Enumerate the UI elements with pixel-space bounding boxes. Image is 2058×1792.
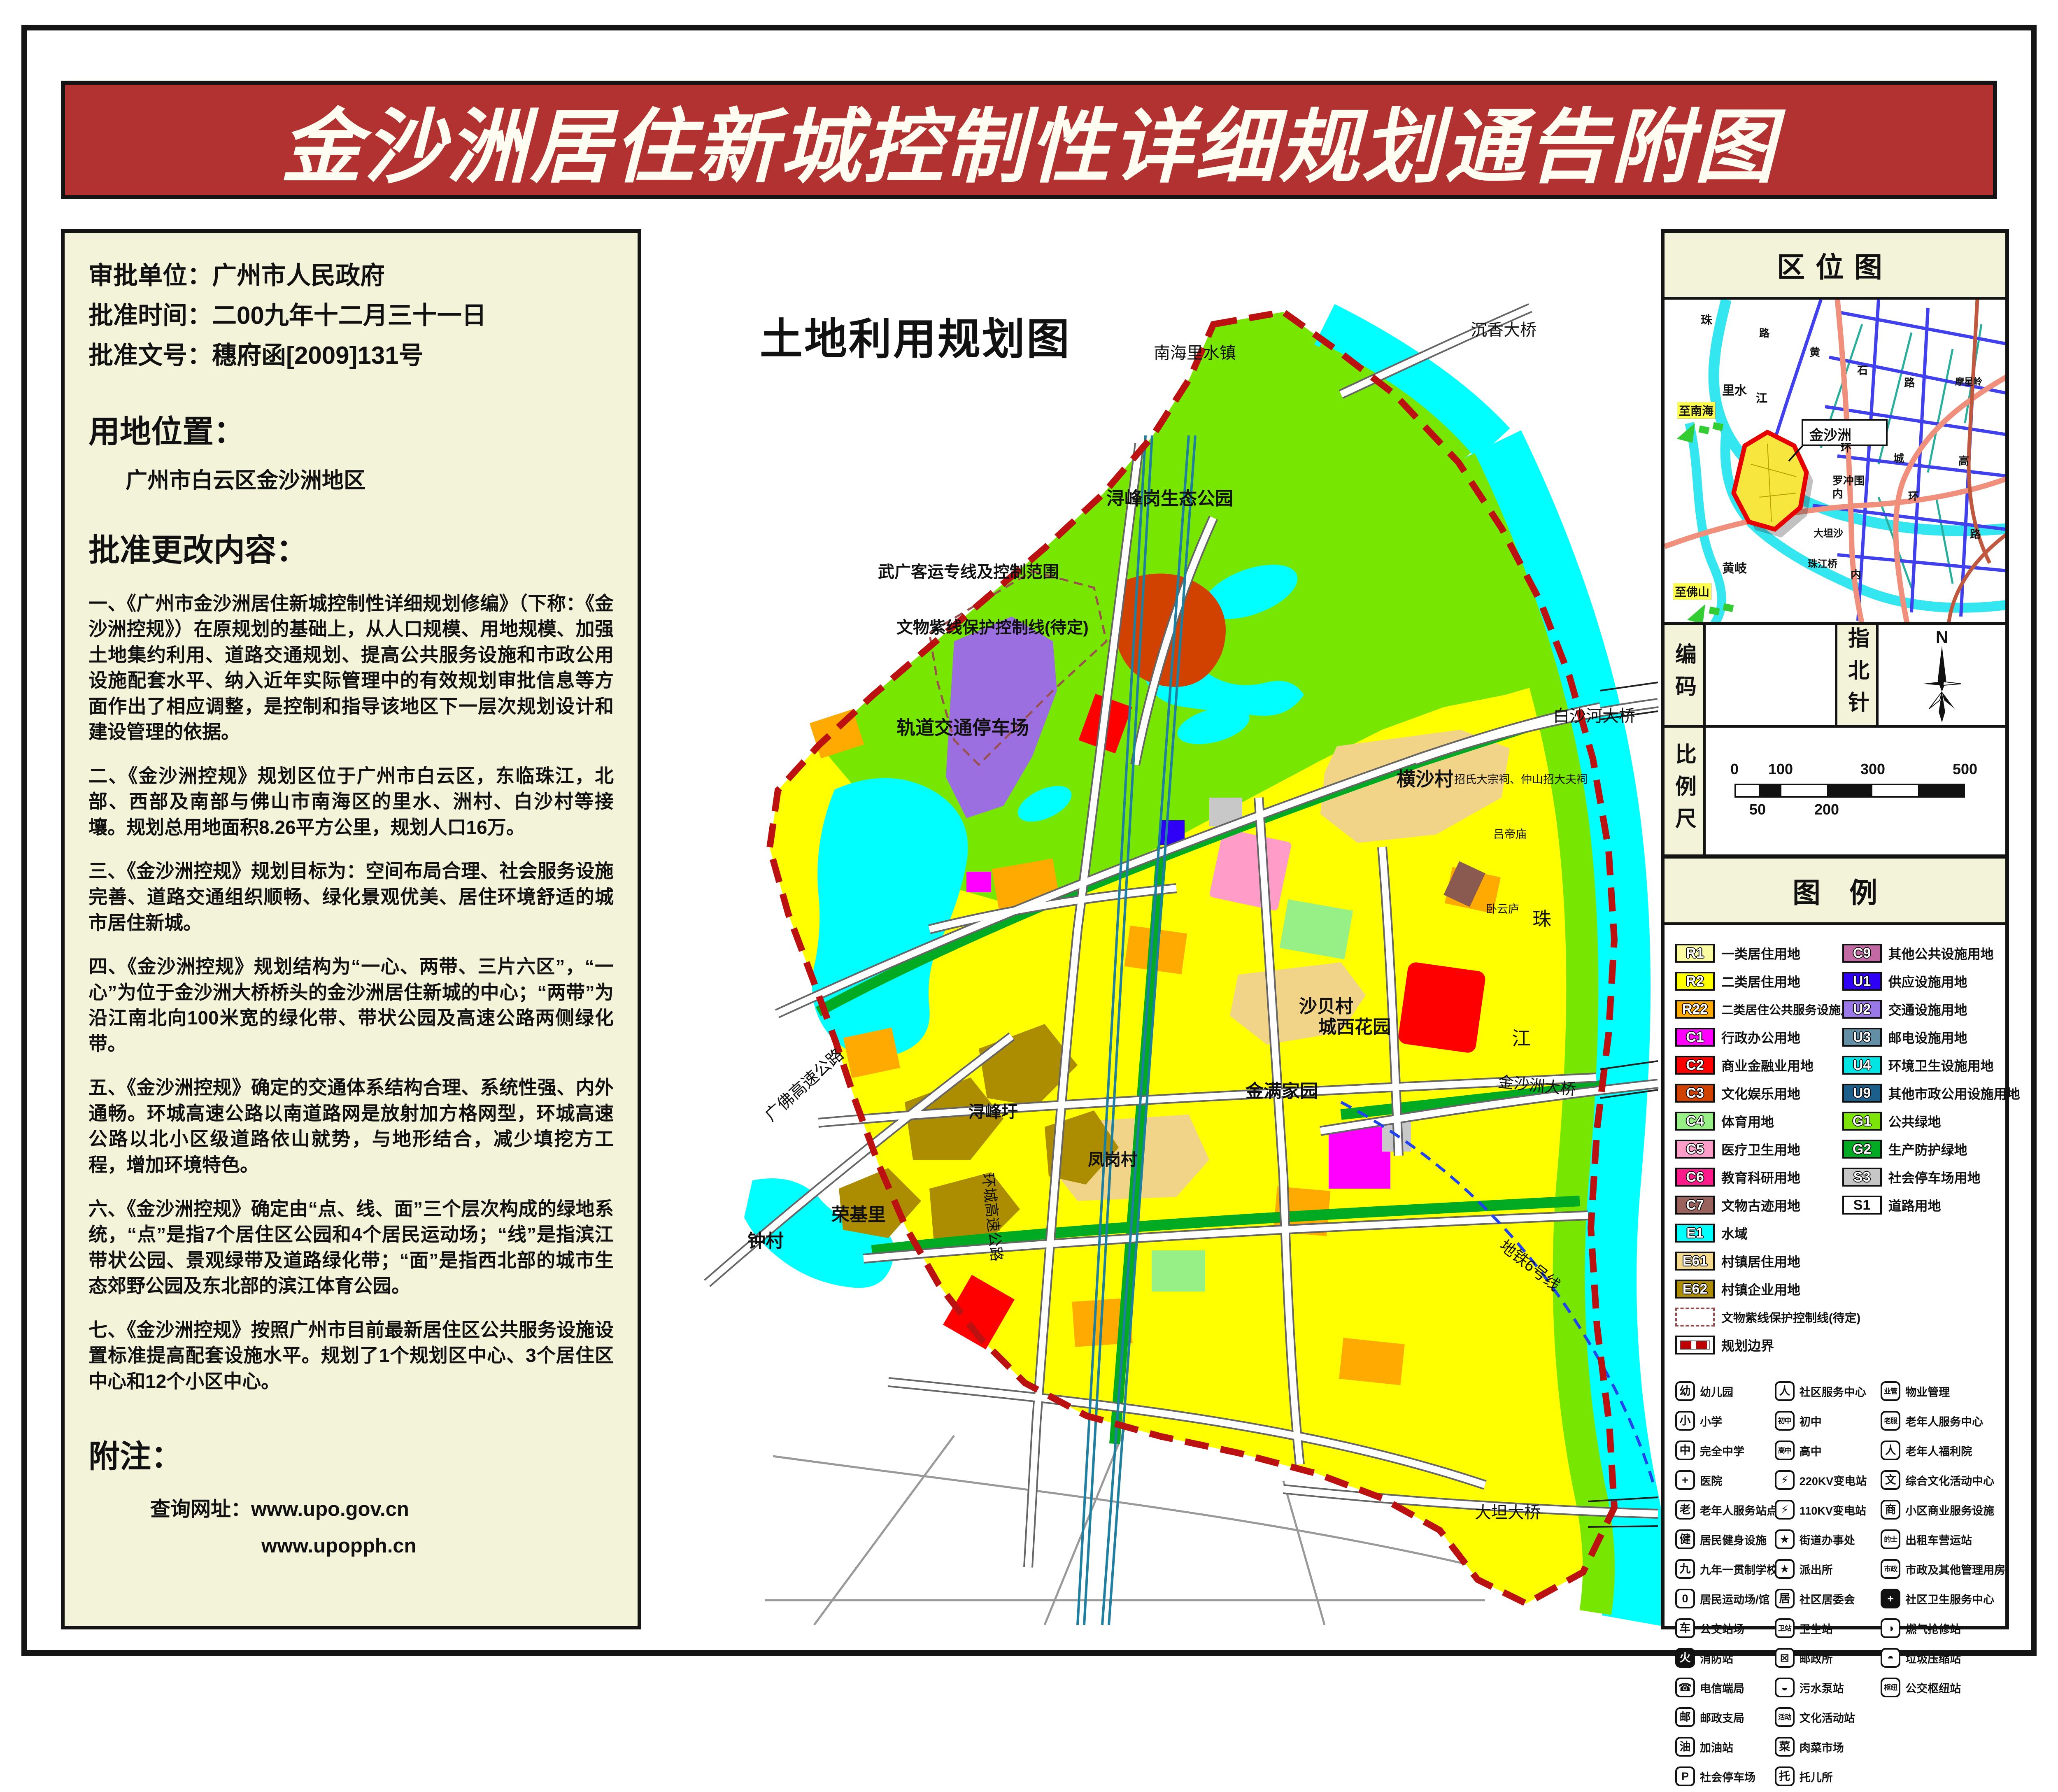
elderly-service-point-icon: 老 xyxy=(1675,1500,1695,1520)
commercial-facility-legend: 商小区商业服务设施 xyxy=(1881,1498,1996,1521)
legend-item: C5医疗卫生用地 xyxy=(1675,1137,1842,1161)
legend-label: 规划边界 xyxy=(1721,1336,1774,1354)
nine-year-school-icon: 九 xyxy=(1675,1559,1695,1579)
empty-cell xyxy=(1881,1735,1996,1758)
banner: 金沙洲居住新城控制性详细规划通告附图 xyxy=(61,81,1997,199)
legend-swatch xyxy=(1675,1308,1715,1327)
map-label: 金满家园 xyxy=(1246,1076,1318,1103)
legend-item: C6教育科研用地 xyxy=(1675,1165,1842,1189)
substation-110kv-icon: ⚡ xyxy=(1775,1500,1795,1520)
complete-middle-school-icon: 中 xyxy=(1675,1441,1695,1460)
legend-label: 村镇居住用地 xyxy=(1721,1252,1800,1271)
facility-label: 公交枢纽站 xyxy=(1905,1680,1961,1696)
substation-220kv-legend: ⚡220KV变电站 xyxy=(1775,1469,1881,1492)
legend-swatch: C7 xyxy=(1675,1196,1715,1215)
right-panel: 区位图 xyxy=(1661,229,2009,1629)
note-url-label: 查询网址： xyxy=(150,1498,251,1520)
legend-label: 道路用地 xyxy=(1888,1196,1941,1215)
elderly-service-center-legend: 老服老年人服务中心 xyxy=(1881,1409,1996,1432)
food-market-icon: 菜 xyxy=(1775,1737,1795,1757)
health-station-legend: 卫站卫生站 xyxy=(1775,1617,1881,1640)
legend-item: C9其他公共设施用地 xyxy=(1842,941,1996,966)
location-map-label: 路 xyxy=(1904,375,1915,390)
facility-label: 九年一贯制学校 xyxy=(1700,1561,1778,1577)
legend-swatch: R1 xyxy=(1675,944,1715,963)
location-map-label: 内 xyxy=(1851,566,1861,582)
legend-code: E62 xyxy=(1683,1281,1708,1297)
location-map-label: 路 xyxy=(1759,325,1769,340)
taxi-station-icon: 的士 xyxy=(1881,1529,1900,1549)
landuse-legend-right: C9其他公共设施用地U1供应设施用地U2交通设施用地U3邮电设施用地U4环境卫生… xyxy=(1842,941,1996,1361)
facility-legend: 幼幼儿园人社区服务中心业管物业管理小小学初中初中老服老年人服务中心中完全中学高中… xyxy=(1675,1380,1996,1788)
facility-label: 老年人服务站点 xyxy=(1700,1502,1778,1518)
legend-code: U1 xyxy=(1853,973,1871,989)
facility-label: 110KV变电站 xyxy=(1800,1502,1866,1518)
scale-tick-top: 300 xyxy=(1860,761,1885,778)
approval-label: 批准时间： xyxy=(88,302,212,329)
legend-swatch: R22 xyxy=(1675,1000,1715,1019)
kindergarten-icon: 幼 xyxy=(1675,1381,1695,1401)
legend-swatch: C9 xyxy=(1842,944,1882,963)
food-market-legend: 菜肉菜市场 xyxy=(1775,1735,1881,1758)
telecom-office-icon: ☎ xyxy=(1675,1678,1695,1697)
legend-item: U4环境卫生设施用地 xyxy=(1842,1053,1996,1078)
location-map-svg xyxy=(1665,300,2005,625)
legend-item: R1一类居住用地 xyxy=(1675,941,1842,966)
legend-label: 二类居住用地 xyxy=(1721,972,1800,991)
location-map-label: 里水 xyxy=(1722,380,1747,398)
neighborhood-committee-legend: 居社区居委会 xyxy=(1775,1587,1881,1610)
legend-swatch: C2 xyxy=(1675,1056,1715,1075)
legend-label: 邮电设施用地 xyxy=(1888,1028,1967,1047)
primary-school-legend: 小小学 xyxy=(1675,1409,1775,1432)
approval-value: 穗府函[2009]131号 xyxy=(212,342,424,369)
nursery-legend: 托托儿所 xyxy=(1775,1765,1881,1788)
approval-value: 二00九年十二月三十一日 xyxy=(212,302,487,329)
legend-swatch: U3 xyxy=(1842,1028,1882,1047)
map-label: 凤岗村 xyxy=(1088,1146,1137,1170)
public-parking-legend: P社会停车场 xyxy=(1675,1765,1775,1788)
legend-code: U4 xyxy=(1853,1057,1871,1073)
legend-code: U9 xyxy=(1853,1085,1871,1101)
legend-item: S3社会停车场用地 xyxy=(1842,1165,1996,1189)
legend-code: C3 xyxy=(1686,1085,1704,1101)
fire-station-icon: 火 xyxy=(1675,1648,1695,1668)
facility-label: 居民运动场/馆 xyxy=(1700,1591,1770,1607)
community-service-center-legend: 人社区服务中心 xyxy=(1775,1380,1881,1403)
approval-label: 审批单位： xyxy=(88,262,212,289)
legend-code: U3 xyxy=(1853,1029,1871,1045)
legend-item: U9其他市政公用设施用地 xyxy=(1842,1081,1996,1105)
empty-cell xyxy=(1881,1706,1996,1729)
map-label: 卧云庐 xyxy=(1486,900,1519,916)
scale-row: 比例尺 0100300500 50200 xyxy=(1665,728,2005,859)
map-label: 横沙村 xyxy=(1397,764,1453,791)
elderly-welfare-home-icon: 人 xyxy=(1881,1441,1900,1460)
legend-item: C4体育用地 xyxy=(1675,1109,1842,1133)
location-map-label: 金沙洲 xyxy=(1809,424,1851,444)
location-map-label: 至佛山 xyxy=(1673,583,1711,600)
facility-label: 小学 xyxy=(1700,1413,1722,1429)
bus-station-icon: 车 xyxy=(1675,1618,1695,1638)
legend-swatch: C3 xyxy=(1675,1084,1715,1103)
legend-code: R1 xyxy=(1686,945,1704,961)
facility-label: 肉菜市场 xyxy=(1800,1739,1844,1755)
legend-code: G1 xyxy=(1853,1113,1871,1129)
legend-code: C7 xyxy=(1686,1197,1704,1213)
gas-station-icon: 油 xyxy=(1675,1737,1695,1757)
map-label: 珠 xyxy=(1532,904,1551,931)
map-label: 荣基里 xyxy=(831,1200,886,1226)
facility-label: 公交站场 xyxy=(1700,1620,1744,1636)
legend-item: G2生产防护绿地 xyxy=(1842,1137,1996,1161)
legend-item: 文物紫线保护控制线(待定) xyxy=(1675,1305,1842,1329)
facility-label: 污水泵站 xyxy=(1800,1680,1844,1696)
facility-label: 220KV变电站 xyxy=(1800,1472,1867,1488)
location-map-label: 城 xyxy=(1893,450,1904,465)
code-value-cell xyxy=(1706,625,1837,725)
commercial-facility-icon: 商 xyxy=(1881,1500,1900,1520)
legend-label: 其他市政公用设施用地 xyxy=(1888,1084,2020,1103)
municipal-management-legend: 市政市政及其他管理用房 xyxy=(1881,1557,1996,1580)
scale-tick-top: 0 xyxy=(1730,761,1739,778)
paragraph-list: 一、《广州市金沙洲居住新城控制性详细规划修编》（下称：《金沙洲控规》）在原规划的… xyxy=(88,591,614,1394)
legend-label: 商业金融业用地 xyxy=(1721,1056,1814,1075)
location-map-label: 摩星岭 xyxy=(1955,375,1982,388)
change-paragraph-7: 七、《金沙洲控规》按照广州市目前最新居住区公共服务设施设置标准提高配套设施水平。… xyxy=(88,1317,614,1394)
police-station-legend: ★派出所 xyxy=(1775,1557,1881,1580)
legend-item: C2商业金融业用地 xyxy=(1675,1053,1842,1078)
property-management-icon: 业管 xyxy=(1881,1381,1900,1401)
legend-item: C7文物古迹用地 xyxy=(1675,1193,1842,1217)
legend-code: C1 xyxy=(1686,1029,1704,1045)
legend-item: E1水域 xyxy=(1675,1221,1842,1245)
change-paragraph-5: 五、《金沙洲控规》确定的交通体系结构合理、系统性强、内外通畅。环城高速公路以南道… xyxy=(88,1075,614,1178)
legend-swatch: U1 xyxy=(1842,972,1882,991)
landuse-map: 土地利用规划图 南海里水镇沉香大桥浔峰岗生态公园武广客运专线及控制范围文物紫线保… xyxy=(641,229,1661,1629)
location-value: 广州市白云区金沙洲地区 xyxy=(126,463,614,494)
facility-label: 文化活动站 xyxy=(1800,1709,1855,1725)
legend-code: C6 xyxy=(1686,1169,1704,1185)
facility-label: 社区卫生服务中心 xyxy=(1905,1591,1994,1607)
bus-hub-icon: 枢纽 xyxy=(1881,1678,1900,1697)
map-label: 招氏大宗祠、仲山招大夫祠 xyxy=(1454,770,1588,787)
location-map-label: 高 xyxy=(1958,453,1969,468)
scale-tick-bottom: 200 xyxy=(1814,801,1839,818)
location-map-label: 黄 xyxy=(1809,344,1820,359)
legend-item: C1行政办公用地 xyxy=(1675,1025,1842,1050)
legend-label: 交通设施用地 xyxy=(1888,1000,1967,1019)
url-upo: www.upo.gov.cn xyxy=(251,1498,409,1520)
compass-cell: N xyxy=(1879,625,2005,725)
map-label: 吕帝庙 xyxy=(1493,825,1527,841)
community-health-center-legend: +社区卫生服务中心 xyxy=(1881,1587,1996,1610)
legend-swatch: R2 xyxy=(1675,972,1715,991)
legend-label: 教育科研用地 xyxy=(1721,1168,1800,1187)
landuse-legend: R1一类居住用地R2二类居住用地R22二类居住公共服务设施用地C1行政办公用地C… xyxy=(1675,941,1996,1361)
post-branch-icon: 邮 xyxy=(1675,1707,1695,1727)
municipal-management-icon: 市政 xyxy=(1881,1559,1900,1579)
location-heading: 用地位置： xyxy=(88,406,614,451)
legend-item: G1公共绿地 xyxy=(1842,1109,1996,1133)
facility-label: 卫生站 xyxy=(1800,1620,1833,1636)
legend-swatch: C5 xyxy=(1675,1140,1715,1159)
senior-high-legend: 高中高中 xyxy=(1775,1439,1881,1462)
legend-swatch: E1 xyxy=(1675,1224,1715,1243)
cultural-activity-station-legend: 活动文化活动站 xyxy=(1775,1706,1881,1729)
change-paragraph-3: 三、《金沙洲控规》规划目标为：空间布局合理、社会服务设施完善、道路交通组织顺畅、… xyxy=(88,858,614,936)
substation-220kv-icon: ⚡ xyxy=(1775,1470,1795,1490)
map-label: 白沙河大桥 xyxy=(1553,703,1635,726)
legend-label: 行政办公用地 xyxy=(1721,1028,1800,1047)
facility-label: 初中 xyxy=(1800,1413,1822,1429)
legend-item: U1供应设施用地 xyxy=(1842,969,1996,994)
fitness-facility-legend: 健居民健身设施 xyxy=(1675,1528,1775,1551)
map-label: 浔峰岗生态公园 xyxy=(1106,484,1233,510)
complete-middle-school-legend: 中完全中学 xyxy=(1675,1439,1775,1462)
legend-body: R1一类居住用地R2二类居住用地R22二类居住公共服务设施用地C1行政办公用地C… xyxy=(1665,925,2005,1792)
facility-label: 邮政支局 xyxy=(1700,1709,1744,1725)
map-label: 轨道交通停车场 xyxy=(896,713,1029,740)
location-map-label: 江 xyxy=(1756,389,1767,406)
neighborhood-committee-icon: 居 xyxy=(1775,1589,1795,1608)
bus-hub-legend: 枢纽公交枢纽站 xyxy=(1881,1676,1996,1699)
compass-label: 指北针 xyxy=(1837,625,1879,725)
health-station-icon: 卫站 xyxy=(1775,1618,1795,1638)
taxi-station-legend: 的士出租车营运站 xyxy=(1881,1528,1996,1551)
facility-label: 街道办事处 xyxy=(1800,1531,1855,1548)
facility-label: 社区服务中心 xyxy=(1800,1383,1866,1399)
note-heading: 附注： xyxy=(88,1431,614,1476)
community-health-center-icon: + xyxy=(1881,1589,1900,1608)
telecom-office-legend: ☎电信端局 xyxy=(1675,1676,1775,1699)
post-branch-legend: 邮邮政支局 xyxy=(1675,1706,1775,1729)
garbage-compression-station-icon: ◓ xyxy=(1881,1648,1900,1668)
elderly-welfare-home-legend: 人老年人福利院 xyxy=(1881,1439,1996,1462)
facility-label: 邮政所 xyxy=(1800,1650,1833,1666)
fitness-facility-icon: 健 xyxy=(1675,1529,1695,1549)
approval-label: 批准文号： xyxy=(88,342,212,369)
gas-repair-station-legend: ◑燃气抢修站 xyxy=(1881,1617,1996,1640)
legend-label: 生产防护绿地 xyxy=(1888,1140,1967,1159)
changes-heading: 批准更改内容： xyxy=(88,525,614,570)
change-paragraph-2: 二、《金沙洲控规》规划区位于广州市白云区，东临珠江，北部、西部及南部与佛山市南海… xyxy=(88,763,614,840)
facility-label: 派出所 xyxy=(1800,1561,1833,1577)
legend-label: 村镇企业用地 xyxy=(1721,1280,1800,1299)
hospital-icon: + xyxy=(1675,1470,1695,1490)
approval-line-1: 批准时间：二00九年十二月三十一日 xyxy=(88,296,614,335)
legend-swatch xyxy=(1675,1336,1715,1354)
legend-item: E61村镇居住用地 xyxy=(1675,1249,1842,1273)
facility-label: 消防站 xyxy=(1700,1650,1733,1666)
facility-label: 老年人福利院 xyxy=(1905,1443,1972,1459)
legend-item: U3邮电设施用地 xyxy=(1842,1025,1996,1050)
facility-label: 医院 xyxy=(1700,1472,1722,1488)
scale-area: 0100300500 50200 xyxy=(1706,728,2005,854)
nursery-icon: 托 xyxy=(1775,1766,1795,1786)
location-map-label: 路 xyxy=(1970,526,1981,541)
facility-label: 老年人服务中心 xyxy=(1905,1413,1983,1429)
legend-swatch: S1 xyxy=(1842,1196,1882,1215)
code-label: 编码 xyxy=(1665,625,1706,725)
sewage-pump-station-legend: ◒污水泵站 xyxy=(1775,1676,1881,1699)
change-paragraph-4: 四、《金沙洲控规》规划结构为“一心、两带、三片六区”，“一心”为位于金沙洲大桥桥… xyxy=(88,954,614,1057)
legend-label: 其他公共设施用地 xyxy=(1888,944,1994,963)
note-url-1: 查询网址：www.upo.gov.cn xyxy=(150,1493,614,1522)
legend-item: C3文化娱乐用地 xyxy=(1675,1081,1842,1105)
facility-label: 小区商业服务设施 xyxy=(1905,1502,1994,1518)
facility-label: 市政及其他管理用房 xyxy=(1905,1561,2005,1577)
facility-label: 综合文化活动中心 xyxy=(1905,1472,1994,1488)
legend-label: 环境卫生设施用地 xyxy=(1888,1056,1994,1075)
junior-high-legend: 初中初中 xyxy=(1775,1409,1881,1432)
location-map-label: 珠江桥 xyxy=(1808,556,1837,570)
elderly-service-center-icon: 老服 xyxy=(1881,1411,1900,1431)
map-label: 浔峰圩 xyxy=(968,1098,1018,1122)
map-label: 武广客运专线及控制范围 xyxy=(878,559,1059,582)
property-management-legend: 业管物业管理 xyxy=(1881,1380,1996,1403)
legend-swatch: U9 xyxy=(1842,1084,1882,1103)
approval-value: 广州市人民政府 xyxy=(212,262,385,289)
change-paragraph-6: 六、《金沙洲控规》确定由“点、线、面”三个层次构成的绿地系统，“点”是指7个居住… xyxy=(88,1196,614,1299)
gas-station-legend: 油加油站 xyxy=(1675,1735,1775,1758)
facility-label: 完全中学 xyxy=(1700,1443,1744,1459)
facility-label: 居民健身设施 xyxy=(1700,1531,1767,1548)
legend-swatch: G2 xyxy=(1842,1140,1882,1159)
legend-code: E1 xyxy=(1686,1225,1704,1241)
facility-label: 出租车营运站 xyxy=(1905,1531,1972,1548)
scale-label: 比例尺 xyxy=(1665,728,1706,854)
community-service-center-icon: 人 xyxy=(1775,1381,1795,1401)
bus-station-legend: 车公交站场 xyxy=(1675,1617,1775,1640)
legend-code: C5 xyxy=(1686,1141,1704,1157)
post-office-icon: ⊠ xyxy=(1775,1648,1795,1668)
map-label: 南海里水镇 xyxy=(1154,340,1236,363)
scale-tick-top: 100 xyxy=(1768,761,1793,778)
legend-code: R22 xyxy=(1682,1001,1708,1017)
hospital-legend: +医院 xyxy=(1675,1469,1775,1492)
scale-bar: 0100300500 50200 xyxy=(1734,761,1965,826)
facility-label: 社会停车场 xyxy=(1700,1769,1755,1785)
landuse-map-svg xyxy=(641,229,1661,1629)
location-map-label: 珠 xyxy=(1701,311,1712,328)
legend-code: C2 xyxy=(1686,1057,1704,1073)
legend-swatch: U4 xyxy=(1842,1056,1882,1075)
legend-swatch: U2 xyxy=(1842,1000,1882,1019)
legend-code: C4 xyxy=(1686,1113,1704,1129)
facility-label: 幼儿园 xyxy=(1700,1383,1733,1399)
map-label: 大坦大桥 xyxy=(1475,1499,1541,1523)
legend-title: 图例 xyxy=(1665,859,2005,925)
legend-label: 水域 xyxy=(1721,1224,1748,1243)
map-label: 钟村 xyxy=(747,1226,784,1252)
scale-tick-top: 500 xyxy=(1953,761,1977,778)
substation-110kv-legend: ⚡110KV变电站 xyxy=(1775,1498,1881,1521)
facility-label: 高中 xyxy=(1800,1443,1822,1459)
legend-label: 文物紫线保护控制线(待定) xyxy=(1721,1308,1860,1326)
map-label: 沉香大桥 xyxy=(1471,317,1537,340)
approval-line-2: 批准文号：穗府函[2009]131号 xyxy=(88,335,614,375)
legend-label: 一类居住用地 xyxy=(1721,944,1800,963)
legend-item: E62村镇企业用地 xyxy=(1675,1277,1842,1301)
facility-label: 垃圾压缩站 xyxy=(1905,1650,1961,1666)
senior-high-icon: 高中 xyxy=(1775,1441,1795,1460)
garbage-compression-station-legend: ◓垃圾压缩站 xyxy=(1881,1646,1996,1669)
facility-label: 燃气抢修站 xyxy=(1905,1620,1961,1636)
legend-label: 公共绿地 xyxy=(1888,1112,1941,1131)
legend-swatch: G1 xyxy=(1842,1112,1882,1131)
location-map-label: 至南海 xyxy=(1677,402,1716,419)
legend-code: U2 xyxy=(1853,1001,1871,1017)
approval-lines: 审批单位：广州市人民政府批准时间：二00九年十二月三十一日批准文号：穗府函[20… xyxy=(88,256,614,376)
location-map-label: 内 xyxy=(1832,486,1843,501)
facility-label: 加油站 xyxy=(1700,1739,1733,1755)
legend-code: G2 xyxy=(1853,1141,1871,1157)
note-url-2: www.upopph.cn xyxy=(261,1534,614,1557)
elderly-service-point-legend: 老老年人服务站点 xyxy=(1675,1498,1775,1521)
location-map-title: 区位图 xyxy=(1665,233,2005,300)
map-label: 江 xyxy=(1512,1024,1531,1051)
cultural-center-icon: 文 xyxy=(1881,1470,1900,1490)
kindergarten-legend: 幼幼儿园 xyxy=(1675,1380,1775,1403)
map-label: 文物紫线保护控制线(待定) xyxy=(896,614,1089,638)
primary-school-icon: 小 xyxy=(1675,1411,1695,1431)
facility-label: 社区居委会 xyxy=(1800,1591,1855,1607)
empty-cell xyxy=(1881,1765,1996,1788)
location-map-label: 黄岐 xyxy=(1722,558,1747,576)
police-station-icon: ★ xyxy=(1775,1559,1795,1579)
legend-swatch: E61 xyxy=(1675,1252,1715,1271)
map-title: 土地利用规划图 xyxy=(760,304,1071,366)
legend-item: 规划边界 xyxy=(1675,1333,1842,1357)
legend-label: 体育用地 xyxy=(1721,1112,1774,1131)
legend-label: 医疗卫生用地 xyxy=(1721,1140,1800,1159)
legend-swatch: S3 xyxy=(1842,1168,1882,1187)
info-panel: 审批单位：广州市人民政府批准时间：二00九年十二月三十一日批准文号：穗府函[20… xyxy=(61,229,641,1629)
legend-item: R22二类居住公共服务设施用地 xyxy=(1675,997,1842,1022)
legend-label: 社会停车场用地 xyxy=(1888,1168,1981,1187)
legend-swatch: C4 xyxy=(1675,1112,1715,1131)
page-title: 金沙洲居住新城控制性详细规划通告附图 xyxy=(281,82,1777,198)
map-label: 城西花园 xyxy=(1318,1012,1391,1038)
post-office-legend: ⊠邮政所 xyxy=(1775,1646,1881,1669)
change-paragraph-1: 一、《广州市金沙洲居住新城控制性详细规划修编》（下称：《金沙洲控规》）在原规划的… xyxy=(88,591,614,745)
gas-repair-station-icon: ◑ xyxy=(1881,1618,1900,1638)
legend-label: 文物古迹用地 xyxy=(1721,1196,1800,1215)
legend-swatch: E62 xyxy=(1675,1280,1715,1299)
planning-boundary-sample xyxy=(1680,1341,1710,1350)
legend-label: 供应设施用地 xyxy=(1888,972,1967,991)
facility-label: 托儿所 xyxy=(1800,1769,1833,1785)
sewage-pump-station-icon: ◒ xyxy=(1775,1678,1795,1697)
legend-item: S1道路用地 xyxy=(1842,1193,1996,1217)
junior-high-icon: 初中 xyxy=(1775,1411,1795,1431)
fire-station-legend: 火消防站 xyxy=(1675,1646,1775,1669)
compass-icon xyxy=(1905,643,1979,725)
legend-code: E61 xyxy=(1683,1253,1708,1269)
facility-label: 物业管理 xyxy=(1905,1383,1950,1399)
scale-tick-bottom: 50 xyxy=(1749,801,1766,818)
street-office-icon: ★ xyxy=(1775,1529,1795,1549)
facility-label: 电信端局 xyxy=(1700,1680,1744,1696)
cultural-center-legend: 文综合文化活动中心 xyxy=(1881,1469,1996,1492)
location-map-label: 环 xyxy=(1908,488,1919,503)
meta-row: 编码 指北针 N xyxy=(1665,625,2005,728)
legend-code: S3 xyxy=(1853,1169,1871,1185)
landuse-legend-left: R1一类居住用地R2二类居住用地R22二类居住公共服务设施用地C1行政办公用地C… xyxy=(1675,941,1842,1361)
sports-ground-icon: 0 xyxy=(1675,1589,1695,1608)
location-map: 里水黄岐罗冲围大坦沙珠江桥摩星岭珠江路黄石路环城高内环路内至南海至佛山金沙洲 xyxy=(1665,300,2005,625)
